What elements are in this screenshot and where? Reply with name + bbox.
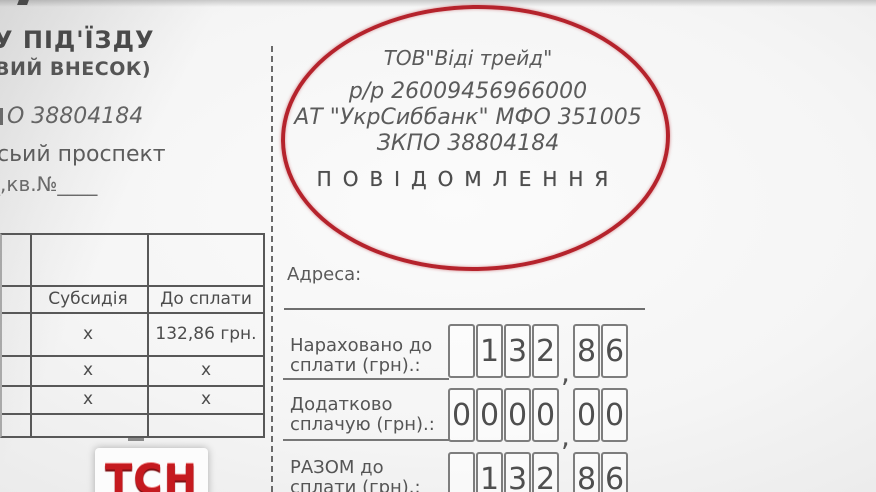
label-underline <box>283 378 449 380</box>
perforation-dashed-line <box>271 46 273 492</box>
row-label-line: сплачую (грн).: <box>290 415 435 435</box>
col-header-subsidy: Субсидія <box>48 289 128 309</box>
digit-box <box>448 324 475 378</box>
table-row-divider <box>2 285 263 287</box>
amount-boxes-kop: 8 6 <box>573 324 628 378</box>
digit-box: 3 <box>504 324 531 378</box>
digit-box: 0 <box>532 388 559 442</box>
table-row-divider <box>2 312 263 314</box>
label-underline <box>283 439 449 441</box>
apartment-line: ___,кв.№____ <box>0 172 97 196</box>
amount-boxes-uah: 1 3 2 <box>448 324 559 378</box>
digit-box: 0 <box>601 388 628 442</box>
row-label-line: сплати (грн).: <box>290 478 421 492</box>
digit-box: 0 <box>573 388 600 442</box>
address-writing-line <box>284 308 645 310</box>
digit-box: 3 <box>504 452 531 492</box>
row-label-line: Нараховано до <box>290 336 432 356</box>
row-label-line: РАЗОМ до <box>290 458 421 478</box>
col-header-due: До сплати <box>160 289 252 309</box>
table-row-divider <box>2 413 263 415</box>
digit-box: 2 <box>532 452 559 492</box>
row-label-accrued: Нараховано до сплати (грн).: <box>290 336 432 376</box>
table-row-divider <box>2 355 263 357</box>
digit-box: 0 <box>448 388 475 442</box>
digit-box: 1 <box>476 452 503 492</box>
row-label-line: сплати (грн).: <box>290 356 432 376</box>
stamp-company: ТОВ"Віді трейд" <box>288 46 648 70</box>
digit-box <box>448 452 475 492</box>
edrpou-code: О 38804184 <box>7 104 143 129</box>
digit-box: 0 <box>504 388 531 442</box>
decimal-comma: , <box>561 484 570 492</box>
table-cell-due: 132,86 грн. <box>155 324 256 344</box>
payee-stamp-block: ТОВ"Віді трейд" р/р 26009456966000 АТ "У… <box>288 46 648 191</box>
digit-box: 1 <box>476 324 503 378</box>
decimal-comma: , <box>561 420 570 453</box>
scan-mark <box>128 438 144 441</box>
stamp-bank: АТ "УкрСиббанк" МФО 351005 <box>288 105 648 131</box>
digit-box: 8 <box>573 324 600 378</box>
digit-box: 6 <box>601 452 628 492</box>
charges-table: Субсидія До сплати x 132,86 грн. x x x x <box>0 233 265 438</box>
row-label-additional: Додатково сплачую (грн).: <box>290 395 435 435</box>
stamp-zkpo: ЗКПО 38804184 <box>288 131 648 157</box>
address-label: Адреса: <box>287 264 361 285</box>
amount-boxes-kop: 8 6 <box>573 452 628 492</box>
receipt-subtitle: ВИЙ ВНЕСОК) <box>0 58 151 80</box>
amount-boxes-kop: 0 0 <box>573 388 628 442</box>
table-cell-subsidy: x <box>83 324 93 344</box>
amount-boxes-uah: 0 0 0 0 <box>448 388 559 442</box>
digit-box: 2 <box>532 324 559 378</box>
cut-letter-fragment <box>0 108 3 125</box>
cut-text-fragment <box>17 0 29 5</box>
row-label-line: Додатково <box>290 395 435 415</box>
table-column-divider <box>30 235 32 436</box>
digit-box: 6 <box>601 324 628 378</box>
table-cell-due: x <box>201 360 211 380</box>
street-line: сьий проспект <box>0 142 166 167</box>
row-label-total: РАЗОМ до сплати (грн).: <box>290 458 421 492</box>
table-cell-due: x <box>201 389 211 409</box>
tsn-logo-text: ТСН <box>105 457 198 492</box>
digit-box: 8 <box>573 452 600 492</box>
table-cell-subsidy: x <box>83 360 93 380</box>
decimal-comma: , <box>561 356 570 389</box>
digit-box: 0 <box>476 388 503 442</box>
amount-boxes-uah: 1 3 2 <box>448 452 559 492</box>
notice-title: ПОВІДОМЛЕННЯ <box>288 167 648 191</box>
table-row-divider <box>2 385 263 387</box>
table-cell-subsidy: x <box>83 389 93 409</box>
stamp-account: р/р 26009456966000 <box>288 79 648 105</box>
tsn-watermark: ТСН <box>95 448 208 492</box>
table-column-divider <box>147 235 149 436</box>
scanned-receipt-page: У ПІД'ЇЗДУ ВИЙ ВНЕСОК) О 38804184 сьий п… <box>0 0 876 492</box>
receipt-title: У ПІД'ЇЗДУ <box>0 26 154 54</box>
